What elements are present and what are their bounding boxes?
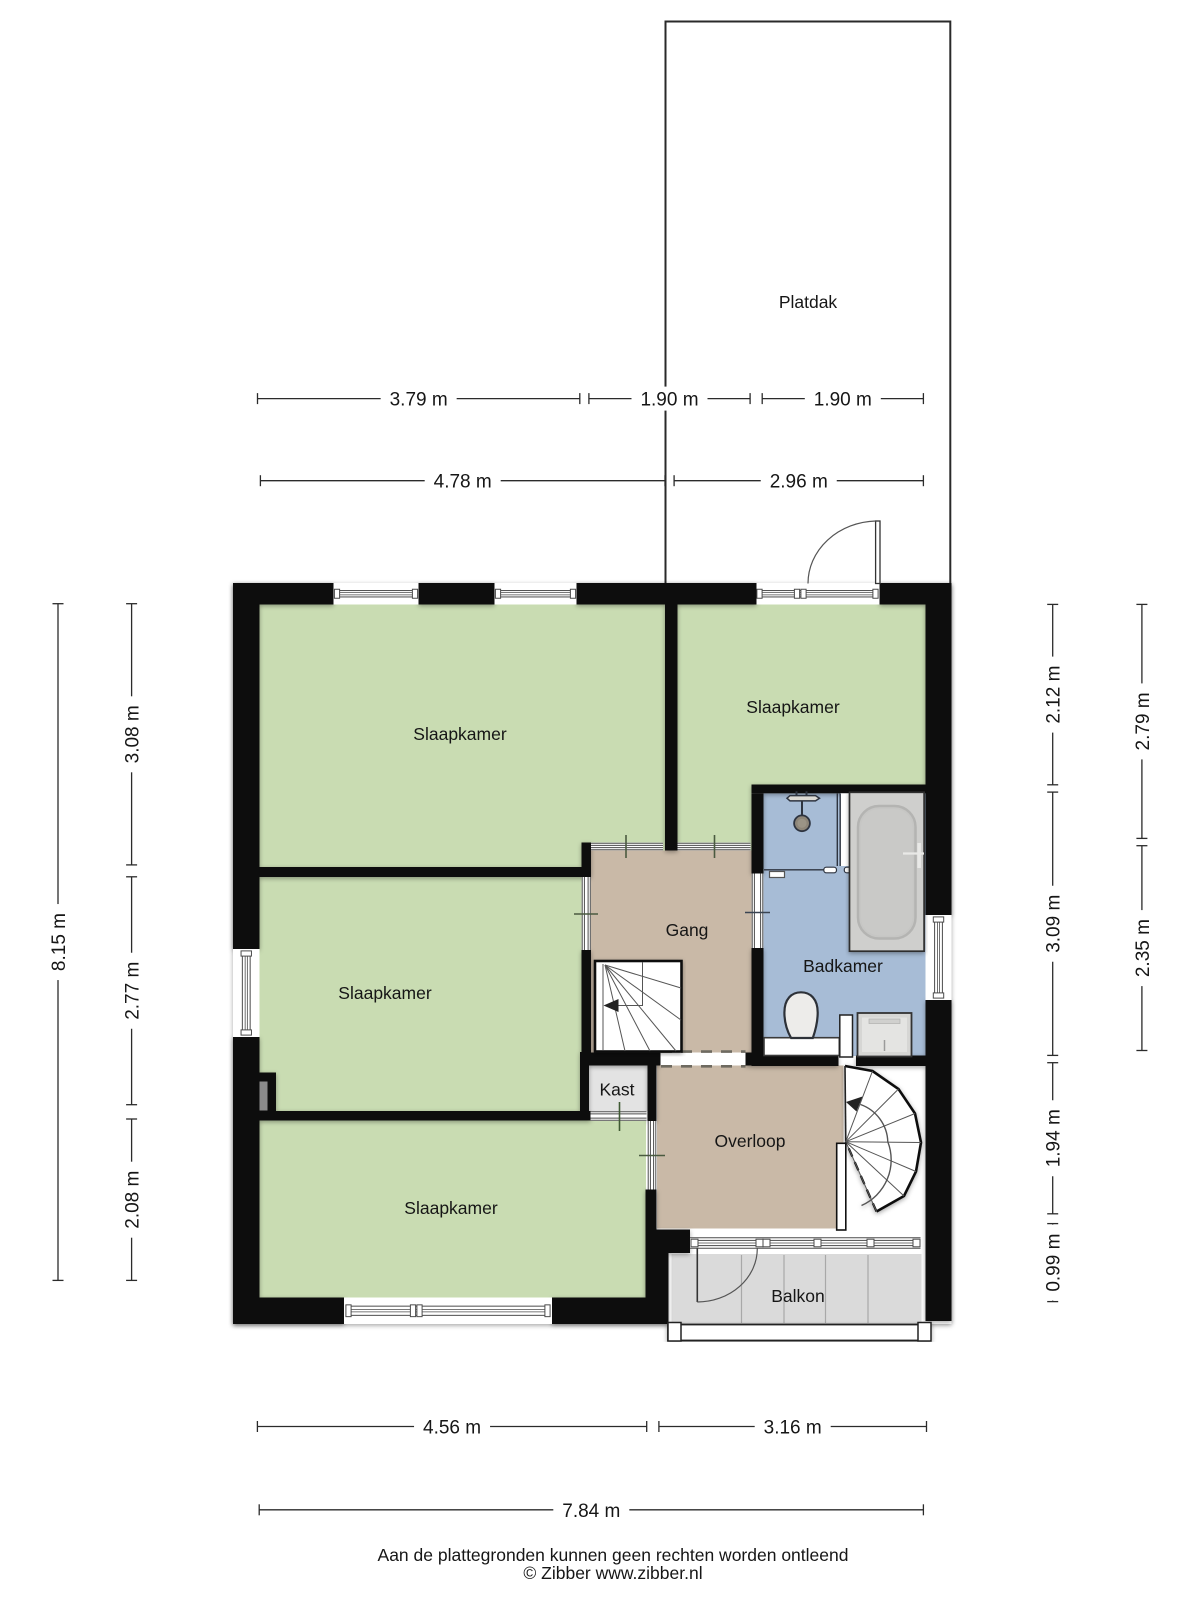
- svg-text:Badkamer: Badkamer: [803, 956, 883, 976]
- svg-text:7.84 m: 7.84 m: [562, 1501, 620, 1522]
- svg-text:0.99 m: 0.99 m: [1044, 1234, 1065, 1292]
- svg-text:4.56 m: 4.56 m: [423, 1418, 481, 1439]
- svg-text:Slaapkamer: Slaapkamer: [338, 983, 432, 1003]
- svg-text:1.94 m: 1.94 m: [1044, 1109, 1065, 1167]
- svg-text:2.77 m: 2.77 m: [123, 962, 144, 1020]
- svg-text:Aan de plattegronden kunnen ge: Aan de plattegronden kunnen geen rechten…: [378, 1545, 849, 1565]
- svg-text:3.79 m: 3.79 m: [390, 390, 448, 411]
- svg-text:8.15 m: 8.15 m: [49, 913, 70, 971]
- svg-text:2.12 m: 2.12 m: [1044, 666, 1065, 724]
- svg-text:3.09 m: 3.09 m: [1044, 895, 1065, 953]
- svg-text:1.90 m: 1.90 m: [640, 390, 698, 411]
- svg-text:Slaapkamer: Slaapkamer: [404, 1198, 498, 1218]
- svg-text:Gang: Gang: [666, 920, 709, 940]
- svg-text:2.79 m: 2.79 m: [1133, 692, 1154, 750]
- svg-text:2.08 m: 2.08 m: [123, 1171, 144, 1229]
- svg-text:2.96 m: 2.96 m: [770, 472, 828, 493]
- svg-text:3.16 m: 3.16 m: [764, 1418, 822, 1439]
- svg-text:Overloop: Overloop: [714, 1131, 785, 1151]
- svg-text:2.35 m: 2.35 m: [1133, 919, 1154, 977]
- svg-text:Kast: Kast: [599, 1080, 634, 1100]
- svg-text:3.08 m: 3.08 m: [123, 705, 144, 763]
- svg-text:4.78 m: 4.78 m: [434, 472, 492, 493]
- svg-text:Platdak: Platdak: [779, 292, 838, 312]
- svg-text:1.90 m: 1.90 m: [814, 390, 872, 411]
- svg-text:© Zibber www.zibber.nl: © Zibber www.zibber.nl: [523, 1563, 702, 1583]
- svg-text:Balkon: Balkon: [771, 1286, 825, 1306]
- svg-text:Slaapkamer: Slaapkamer: [746, 697, 840, 717]
- svg-text:Slaapkamer: Slaapkamer: [413, 724, 507, 744]
